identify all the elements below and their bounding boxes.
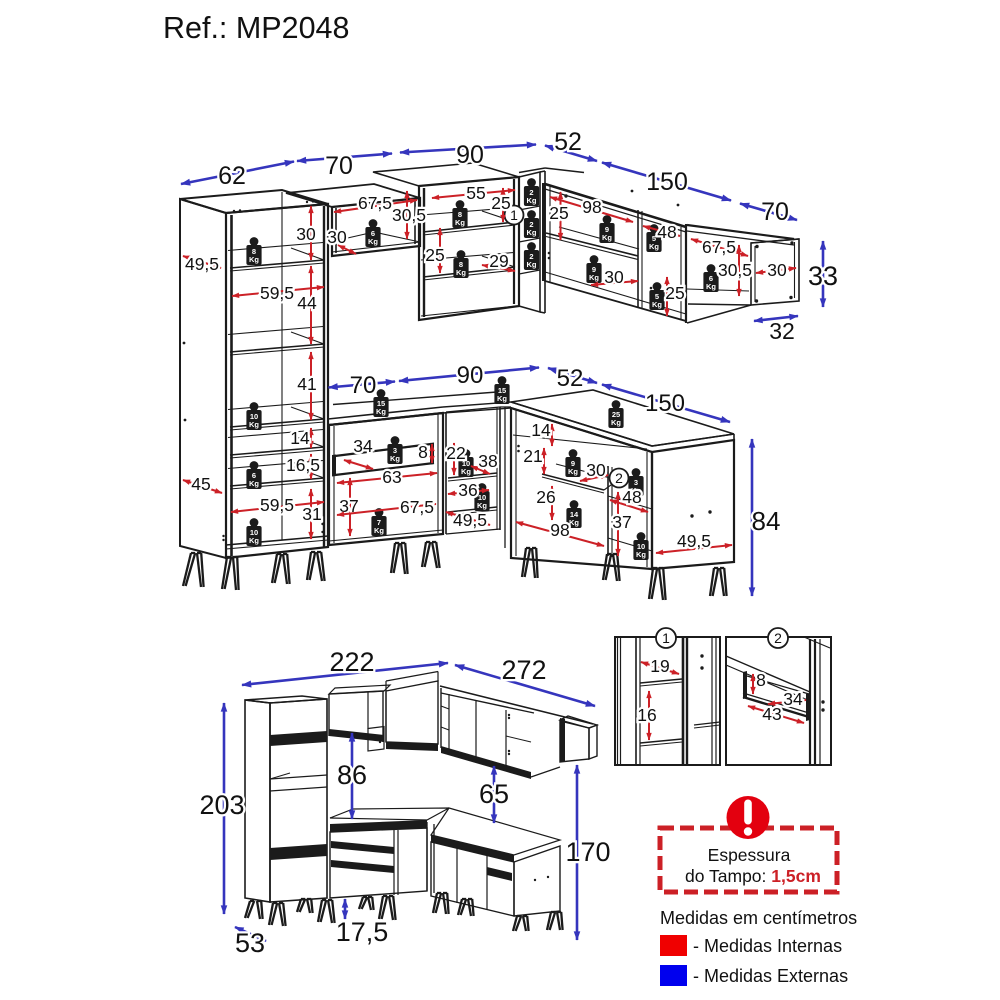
svg-text:150: 150	[646, 168, 688, 196]
svg-text:272: 272	[501, 655, 546, 685]
svg-text:49,5: 49,5	[677, 531, 711, 551]
svg-text:2: 2	[615, 470, 623, 486]
svg-text:52: 52	[557, 365, 584, 392]
svg-text:- Medidas Internas: - Medidas Internas	[693, 936, 842, 956]
svg-text:70: 70	[325, 152, 353, 180]
svg-text:170: 170	[565, 837, 610, 867]
svg-text:14: 14	[290, 428, 310, 448]
svg-text:Kg: Kg	[249, 420, 259, 429]
svg-text:Kg: Kg	[368, 237, 378, 246]
svg-text:8: 8	[418, 442, 428, 462]
svg-text:25: 25	[549, 203, 568, 223]
svg-text:41: 41	[297, 374, 316, 394]
svg-text:Kg: Kg	[249, 479, 259, 488]
svg-text:16: 16	[637, 705, 656, 725]
svg-text:38: 38	[478, 451, 497, 471]
svg-text:36: 36	[458, 480, 477, 500]
svg-text:22: 22	[446, 443, 465, 463]
svg-text:Kg: Kg	[461, 467, 471, 476]
svg-text:31: 31	[302, 504, 321, 524]
svg-text:67,5: 67,5	[358, 193, 392, 213]
svg-text:Kg: Kg	[390, 454, 400, 463]
svg-text:98: 98	[550, 520, 569, 540]
svg-text:Kg: Kg	[376, 407, 386, 416]
svg-text:222: 222	[329, 647, 374, 677]
svg-text:Kg: Kg	[527, 260, 537, 269]
svg-text:63: 63	[382, 467, 401, 487]
svg-text:25: 25	[491, 193, 510, 213]
svg-text:43: 43	[762, 704, 781, 724]
svg-text:Ref.: MP2048: Ref.: MP2048	[163, 11, 350, 45]
svg-text:49,5: 49,5	[185, 254, 219, 274]
svg-text:34: 34	[783, 689, 803, 709]
svg-text:70: 70	[761, 198, 789, 226]
svg-text:Kg: Kg	[652, 300, 662, 309]
svg-text:Kg: Kg	[636, 550, 646, 559]
svg-text:Kg: Kg	[527, 228, 537, 237]
svg-text:29: 29	[489, 251, 508, 271]
svg-text:Kg: Kg	[455, 218, 465, 227]
svg-text:17,5: 17,5	[336, 917, 389, 947]
svg-text:30: 30	[327, 227, 347, 247]
svg-text:34: 34	[353, 436, 373, 456]
svg-text:30: 30	[586, 460, 606, 480]
svg-text:2: 2	[774, 630, 782, 646]
svg-text:55: 55	[466, 183, 485, 203]
svg-text:49,5: 49,5	[453, 510, 487, 530]
svg-text:44: 44	[297, 293, 317, 313]
svg-text:Kg: Kg	[706, 282, 716, 291]
svg-text:Kg: Kg	[249, 255, 259, 264]
svg-text:48: 48	[657, 222, 676, 242]
svg-text:53: 53	[235, 928, 265, 958]
svg-text:Kg: Kg	[568, 467, 578, 476]
svg-text:98: 98	[582, 197, 601, 217]
svg-text:62: 62	[218, 162, 246, 190]
svg-text:30: 30	[604, 267, 624, 287]
svg-text:Kg: Kg	[249, 536, 259, 545]
svg-text:Kg: Kg	[589, 273, 599, 282]
svg-text:Kg: Kg	[456, 268, 466, 277]
svg-text:21: 21	[523, 446, 542, 466]
svg-text:84: 84	[752, 506, 781, 536]
svg-text:8: 8	[756, 670, 766, 690]
svg-text:Kg: Kg	[611, 418, 621, 427]
svg-text:59,5: 59,5	[260, 495, 294, 515]
svg-text:Kg: Kg	[649, 242, 659, 251]
svg-text:26: 26	[536, 487, 555, 507]
svg-text:1: 1	[510, 207, 518, 223]
svg-text:Kg: Kg	[527, 196, 537, 205]
svg-text:203: 203	[199, 790, 244, 820]
svg-text:32: 32	[769, 318, 795, 344]
svg-text:37: 37	[612, 512, 631, 532]
svg-text:48: 48	[622, 487, 641, 507]
svg-text:do Tampo: 1,5cm: do Tampo: 1,5cm	[685, 866, 821, 886]
svg-text:33: 33	[808, 261, 838, 291]
svg-text:30,5: 30,5	[392, 205, 426, 225]
svg-text:52: 52	[554, 128, 582, 156]
svg-text:16,5: 16,5	[286, 455, 320, 475]
svg-text:19: 19	[650, 656, 669, 676]
svg-text:86: 86	[337, 760, 367, 790]
svg-text:65: 65	[479, 779, 509, 809]
svg-text:25: 25	[425, 245, 444, 265]
svg-text:59,5: 59,5	[260, 283, 294, 303]
svg-text:Kg: Kg	[497, 394, 507, 403]
svg-text:- Medidas Externas: - Medidas Externas	[693, 966, 848, 986]
svg-text:90: 90	[456, 141, 484, 169]
svg-text:Kg: Kg	[477, 501, 487, 510]
svg-text:Kg: Kg	[602, 233, 612, 242]
svg-text:25: 25	[665, 283, 684, 303]
svg-text:30: 30	[767, 260, 787, 280]
svg-text:70: 70	[350, 372, 377, 399]
svg-text:150: 150	[645, 390, 685, 417]
svg-text:Medidas em centímetros: Medidas em centímetros	[660, 908, 857, 928]
svg-text:Kg: Kg	[374, 526, 384, 535]
svg-text:Espessura: Espessura	[708, 845, 791, 865]
svg-text:1: 1	[662, 630, 670, 646]
svg-text:Kg: Kg	[569, 518, 579, 527]
svg-text:67,5: 67,5	[702, 237, 736, 257]
svg-text:14: 14	[531, 420, 551, 440]
svg-text:67,5: 67,5	[400, 497, 434, 517]
svg-text:30: 30	[296, 224, 316, 244]
svg-text:30,5: 30,5	[718, 260, 752, 280]
svg-text:45: 45	[191, 474, 210, 494]
svg-text:90: 90	[457, 362, 484, 389]
